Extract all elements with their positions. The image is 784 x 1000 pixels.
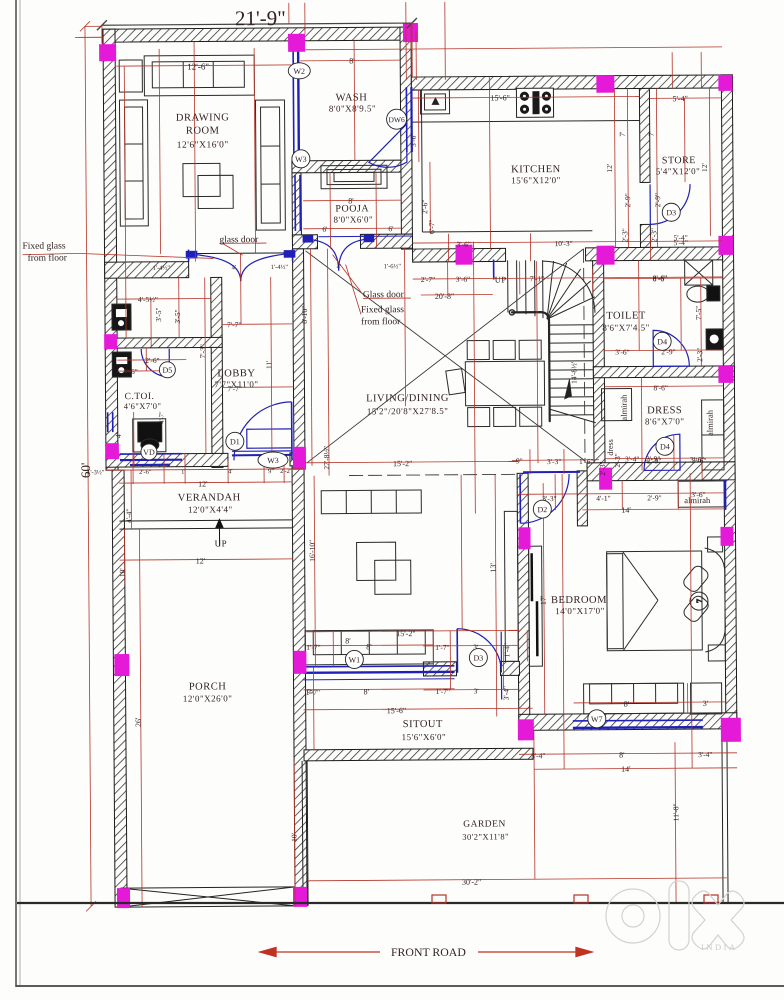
svg-text:almirah: almirah — [684, 495, 711, 505]
svg-text:2'-3": 2'-3" — [598, 461, 607, 475]
svg-text:5'4"X12'0": 5'4"X12'0" — [656, 166, 701, 176]
svg-text:2'-3": 2'-3" — [620, 228, 629, 242]
svg-text:STORE: STORE — [662, 155, 696, 166]
svg-text:8': 8' — [349, 56, 355, 65]
svg-text:9": 9" — [268, 468, 274, 475]
svg-text:8': 8' — [366, 642, 372, 651]
svg-text:2'-9": 2'-9" — [623, 193, 632, 207]
svg-text:FRONT ROAD: FRONT ROAD — [391, 945, 466, 959]
svg-text:BEDROOM: BEDROOM — [551, 595, 607, 606]
svg-text:WASH: WASH — [336, 92, 368, 103]
svg-text:W3: W3 — [267, 456, 279, 465]
svg-text:7'-1": 7'-1" — [530, 274, 544, 283]
svg-text:8': 8' — [348, 196, 354, 205]
svg-text:LOBBY: LOBBY — [217, 368, 255, 379]
svg-text:DW6: DW6 — [388, 115, 405, 124]
svg-text:17': 17' — [539, 595, 548, 605]
svg-text:dress: dress — [606, 439, 615, 456]
svg-text:2'-9": 2'-9" — [647, 493, 661, 502]
svg-text:2'-9": 2'-9" — [653, 193, 662, 207]
svg-text:12': 12' — [700, 162, 709, 172]
svg-text:4': 4' — [114, 432, 123, 438]
svg-text:16'-10": 16'-10" — [308, 540, 317, 562]
svg-text:DRESS: DRESS — [647, 405, 682, 416]
svg-text:from floor: from floor — [361, 316, 401, 327]
svg-text:GARDEN: GARDEN — [463, 819, 506, 829]
svg-text:2'-3": 2'-3" — [695, 348, 704, 362]
svg-text:12': 12' — [196, 557, 206, 566]
svg-text:3': 3' — [703, 699, 709, 708]
svg-text:UP: UP — [495, 274, 507, 284]
svg-text:1'-7": 1'-7" — [435, 643, 449, 652]
svg-text:D3: D3 — [473, 654, 483, 663]
svg-text:11': 11' — [264, 360, 273, 369]
svg-text:8'0"X8'9.5": 8'0"X8'9.5" — [329, 103, 376, 113]
svg-text:10'-3": 10'-3" — [554, 239, 572, 248]
svg-text:15'-6": 15'-6" — [490, 93, 509, 102]
svg-text:almirah: almirah — [619, 394, 629, 421]
svg-text:8'-6": 8'-6" — [653, 383, 667, 392]
svg-text:8'0"X6'0": 8'0"X6'0" — [333, 214, 373, 224]
svg-text:7: 7 — [695, 599, 704, 603]
svg-text:15'-2": 15'-2" — [396, 629, 415, 638]
svg-text:30'2"X11'8": 30'2"X11'8" — [462, 831, 509, 841]
svg-text:3': 3' — [474, 687, 480, 696]
svg-text:8': 8' — [619, 751, 625, 760]
svg-text:2'-9": 2'-9" — [647, 456, 661, 465]
svg-text:1': 1' — [181, 469, 185, 476]
svg-text:glass door: glass door — [219, 235, 259, 245]
svg-text:7'-5": 7'-5" — [694, 306, 703, 320]
svg-text:2'-6": 2'-6" — [145, 356, 159, 365]
svg-text:15'6"X6'0": 15'6"X6'0" — [402, 732, 447, 742]
svg-text:3'-6": 3'-6" — [692, 456, 706, 465]
svg-text:3'-4": 3'-4" — [698, 750, 712, 759]
svg-text:D2: D2 — [537, 505, 547, 514]
svg-text:1'-6½": 1'-6½" — [384, 263, 402, 270]
svg-text:D4: D4 — [657, 337, 667, 346]
svg-text:10': 10' — [118, 568, 127, 578]
svg-text:W3: W3 — [295, 155, 307, 164]
svg-text:3'-5": 3'-5" — [154, 307, 163, 321]
svg-text:D5: D5 — [162, 366, 172, 375]
svg-text:7'-7": 7'-7" — [227, 384, 241, 393]
svg-text:8': 8' — [364, 687, 370, 696]
svg-text:4': 4' — [337, 264, 341, 271]
svg-text:14': 14' — [621, 765, 631, 774]
svg-text:PORCH: PORCH — [189, 681, 227, 692]
svg-text:8'6"X7'4.5": 8'6"X7'4.5" — [602, 322, 649, 332]
svg-text:Glass door: Glass door — [363, 290, 405, 300]
svg-text:W1: W1 — [349, 655, 361, 664]
svg-text:4'-7": 4'-7" — [159, 411, 166, 424]
svg-text:8'-6": 8'-6" — [653, 274, 667, 283]
svg-text:5'-4": 5'-4" — [672, 94, 687, 103]
svg-text:ROOM: ROOM — [186, 125, 220, 136]
svg-text:2'-6": 2'-6" — [139, 469, 152, 476]
svg-text:6': 6' — [322, 225, 328, 234]
svg-text:1'-6": 1'-6" — [579, 457, 593, 466]
svg-text:14': 14' — [621, 506, 631, 515]
svg-text:3'-4": 3'-4" — [625, 454, 639, 463]
svg-text:from floor: from floor — [28, 252, 68, 263]
svg-text:4'-6": 4'-6" — [123, 367, 137, 376]
svg-text:TOILET: TOILET — [606, 310, 646, 321]
svg-text:1'-3½": 1'-3½" — [87, 469, 105, 476]
svg-text:1'-4½": 1'-4½" — [153, 265, 171, 272]
svg-text:DRAWING: DRAWING — [176, 112, 229, 123]
svg-text:8'6"X7'0": 8'6"X7'0" — [645, 416, 685, 426]
svg-text:1'-4": 1'-4" — [502, 643, 511, 657]
svg-text:6'-10": 6'-10" — [300, 306, 309, 324]
svg-text:4'-4": 4'-4" — [124, 509, 133, 523]
svg-text:21'-9": 21'-9" — [235, 6, 286, 30]
svg-text:VD: VD — [143, 448, 155, 457]
svg-text:20'-8": 20'-8" — [435, 292, 454, 301]
svg-text:7': 7' — [618, 131, 627, 137]
svg-text:7'-7": 7'-7" — [227, 320, 241, 329]
svg-text:3'-5": 3'-5" — [173, 309, 182, 323]
svg-text:1'-7": 1'-7" — [306, 643, 320, 652]
svg-text:6'-7": 6'-7" — [427, 219, 436, 233]
svg-text:D3: D3 — [666, 208, 676, 217]
svg-text:SITOUT: SITOUT — [403, 719, 443, 730]
svg-text:1'-7": 1'-7" — [436, 687, 450, 696]
svg-text:3'-3": 3'-3" — [547, 457, 561, 466]
svg-text:D1: D1 — [230, 437, 240, 446]
svg-text:10': 10' — [290, 832, 299, 842]
svg-text:8': 8' — [624, 700, 630, 709]
svg-text:4': 4' — [228, 468, 232, 475]
svg-text:15'6"X12'0": 15'6"X12'0" — [511, 175, 561, 185]
svg-text:30'-2": 30'-2" — [462, 878, 481, 887]
svg-text:15'-2": 15'-2" — [393, 459, 412, 468]
svg-text:2'-6": 2'-6" — [420, 200, 429, 214]
svg-text:8': 8' — [345, 636, 351, 645]
svg-text:27'-8½": 27'-8½" — [322, 446, 331, 470]
svg-text:4'-1": 4'-1" — [596, 494, 610, 503]
svg-text:W2: W2 — [293, 67, 305, 76]
svg-text:LIVING/DINING: LIVING/DINING — [366, 393, 449, 405]
svg-text:2'-7": 2'-7" — [421, 275, 435, 284]
svg-text:KITCHEN: KITCHEN — [511, 164, 561, 175]
svg-text:3'-6": 3'-6" — [456, 240, 470, 249]
svg-text:Fixed glass: Fixed glass — [361, 305, 404, 315]
svg-text:14'-8½": 14'-8½" — [569, 360, 578, 384]
svg-text:3'-6": 3'-6" — [615, 348, 629, 357]
svg-text:D4: D4 — [660, 442, 670, 451]
svg-text:9": 9" — [516, 456, 523, 465]
svg-text:VERANDAH: VERANDAH — [178, 492, 241, 503]
svg-text:26': 26' — [134, 717, 143, 727]
svg-text:5'-4": 5'-4" — [673, 233, 687, 242]
svg-text:almirah: almirah — [705, 409, 715, 436]
svg-text:7': 7' — [647, 131, 656, 137]
svg-text:4'6"X7'0": 4'6"X7'0" — [124, 401, 162, 411]
svg-text:1'-4½": 1'-4½" — [271, 264, 289, 271]
svg-text:15'-6": 15'-6" — [387, 706, 406, 715]
svg-text:7'-3": 7'-3" — [198, 344, 207, 358]
svg-text:12': 12' — [198, 479, 208, 488]
svg-text:W7: W7 — [591, 715, 603, 724]
svg-text:INDIA: INDIA — [701, 942, 738, 952]
svg-text:3'-4": 3'-4" — [502, 686, 511, 700]
svg-text:6': 6' — [306, 688, 315, 694]
svg-text:4'-5½": 4'-5½" — [138, 295, 158, 304]
svg-text:UP: UP — [215, 538, 228, 548]
svg-text:6': 6' — [388, 224, 394, 233]
svg-text:2'-3": 2'-3" — [649, 228, 658, 242]
svg-text:12'0"X26'0": 12'0"X26'0" — [183, 693, 233, 703]
svg-text:2'-2": 2'-2" — [280, 468, 293, 475]
svg-text:12'6"X16'0": 12'6"X16'0" — [177, 140, 229, 150]
svg-text:12': 12' — [605, 163, 614, 173]
svg-text:13': 13' — [489, 562, 498, 572]
svg-text:12'0"X4'4": 12'0"X4'4" — [188, 504, 233, 514]
svg-text:3'-6": 3'-6" — [409, 133, 418, 147]
svg-text:15'2"/20'8"X27'8.5": 15'2"/20'8"X27'8.5" — [367, 406, 449, 417]
svg-text:4': 4' — [232, 264, 236, 271]
svg-text:14'0"X17'0": 14'0"X17'0" — [555, 606, 605, 616]
svg-text:3'-4": 3'-4" — [531, 751, 545, 760]
svg-text:12'-6": 12'-6" — [187, 61, 209, 71]
svg-text:11'-8": 11'-8" — [671, 803, 680, 821]
svg-text:3'-6": 3'-6" — [456, 275, 470, 284]
svg-text:Fixed glass: Fixed glass — [22, 241, 65, 251]
